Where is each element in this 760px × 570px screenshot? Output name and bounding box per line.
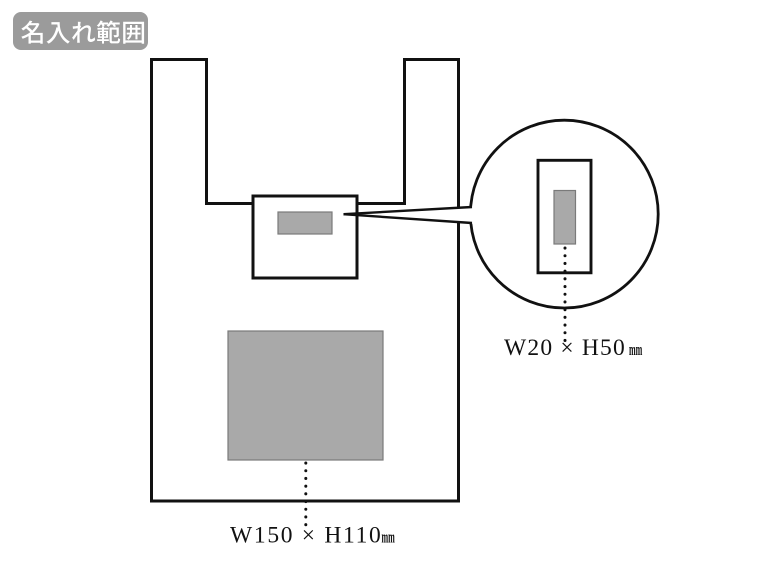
svg-text:mm: mm (382, 527, 395, 546)
svg-text:W150 × H110: W150 × H110 (230, 523, 382, 549)
svg-text:mm: mm (629, 340, 642, 359)
svg-text:W20 × H50: W20 × H50 (504, 335, 626, 361)
